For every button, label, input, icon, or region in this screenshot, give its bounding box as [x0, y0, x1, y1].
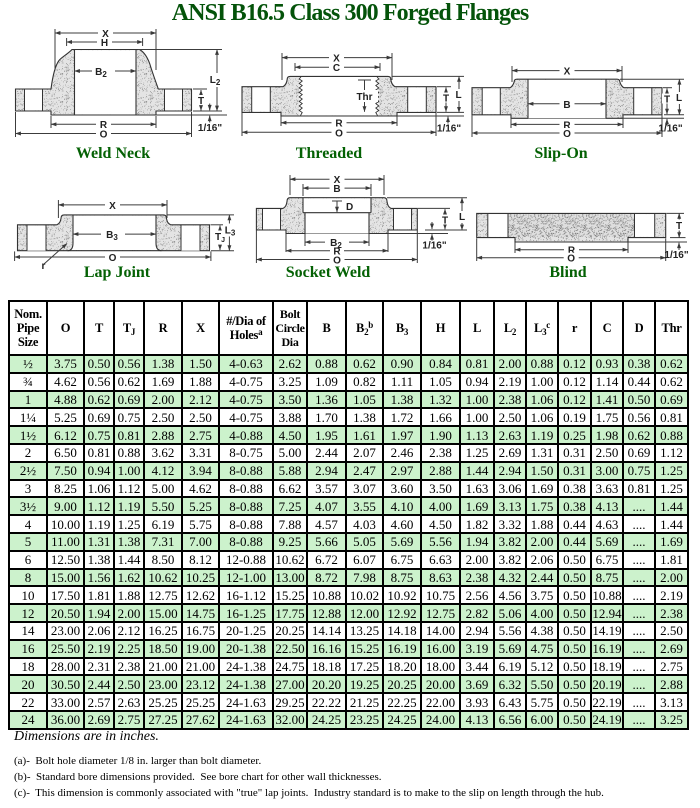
svg-text:1/16": 1/16"	[658, 124, 682, 135]
svg-text:D: D	[346, 202, 353, 213]
svg-text:T: T	[664, 95, 670, 106]
svg-text:r: r	[42, 261, 46, 272]
svg-text:L: L	[455, 90, 461, 101]
svg-text:T: T	[443, 94, 449, 105]
svg-text:B: B	[333, 184, 340, 195]
svg-text:L: L	[676, 93, 682, 104]
svg-text:1/16": 1/16"	[664, 250, 688, 261]
svg-text:Thr: Thr	[356, 92, 372, 103]
svg-text:1/16": 1/16"	[198, 123, 222, 134]
svg-text:O: O	[100, 130, 108, 141]
svg-text:H: H	[101, 38, 108, 49]
svg-text:T: T	[442, 216, 448, 227]
svg-text:B: B	[563, 100, 570, 111]
svg-text:X: X	[109, 201, 116, 212]
svg-text:O: O	[335, 128, 343, 139]
svg-text:1/16": 1/16"	[437, 124, 461, 135]
svg-text:X: X	[564, 67, 571, 78]
svg-text:T: T	[198, 96, 204, 107]
svg-text:L: L	[459, 212, 465, 223]
svg-text:O: O	[109, 253, 117, 264]
svg-text:C: C	[333, 63, 340, 74]
svg-text:1/16": 1/16"	[422, 241, 446, 252]
svg-text:O: O	[563, 129, 571, 140]
svg-text:T: T	[676, 221, 682, 232]
